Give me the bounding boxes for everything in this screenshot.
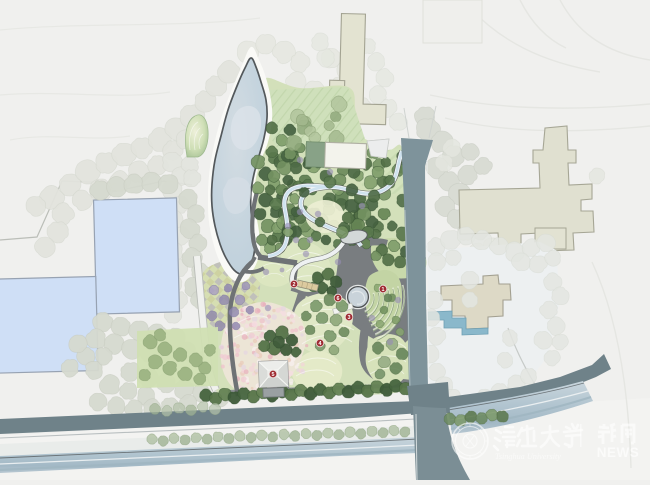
svg-text:3: 3	[348, 315, 351, 321]
svg-text:1: 1	[382, 287, 385, 293]
svg-text:2: 2	[293, 282, 296, 288]
svg-text:Tsinghua University: Tsinghua University	[495, 452, 561, 461]
svg-text:6: 6	[337, 296, 340, 302]
svg-text:5: 5	[272, 372, 275, 378]
svg-text:4: 4	[319, 341, 322, 347]
svg-text:NEWS: NEWS	[597, 445, 640, 460]
